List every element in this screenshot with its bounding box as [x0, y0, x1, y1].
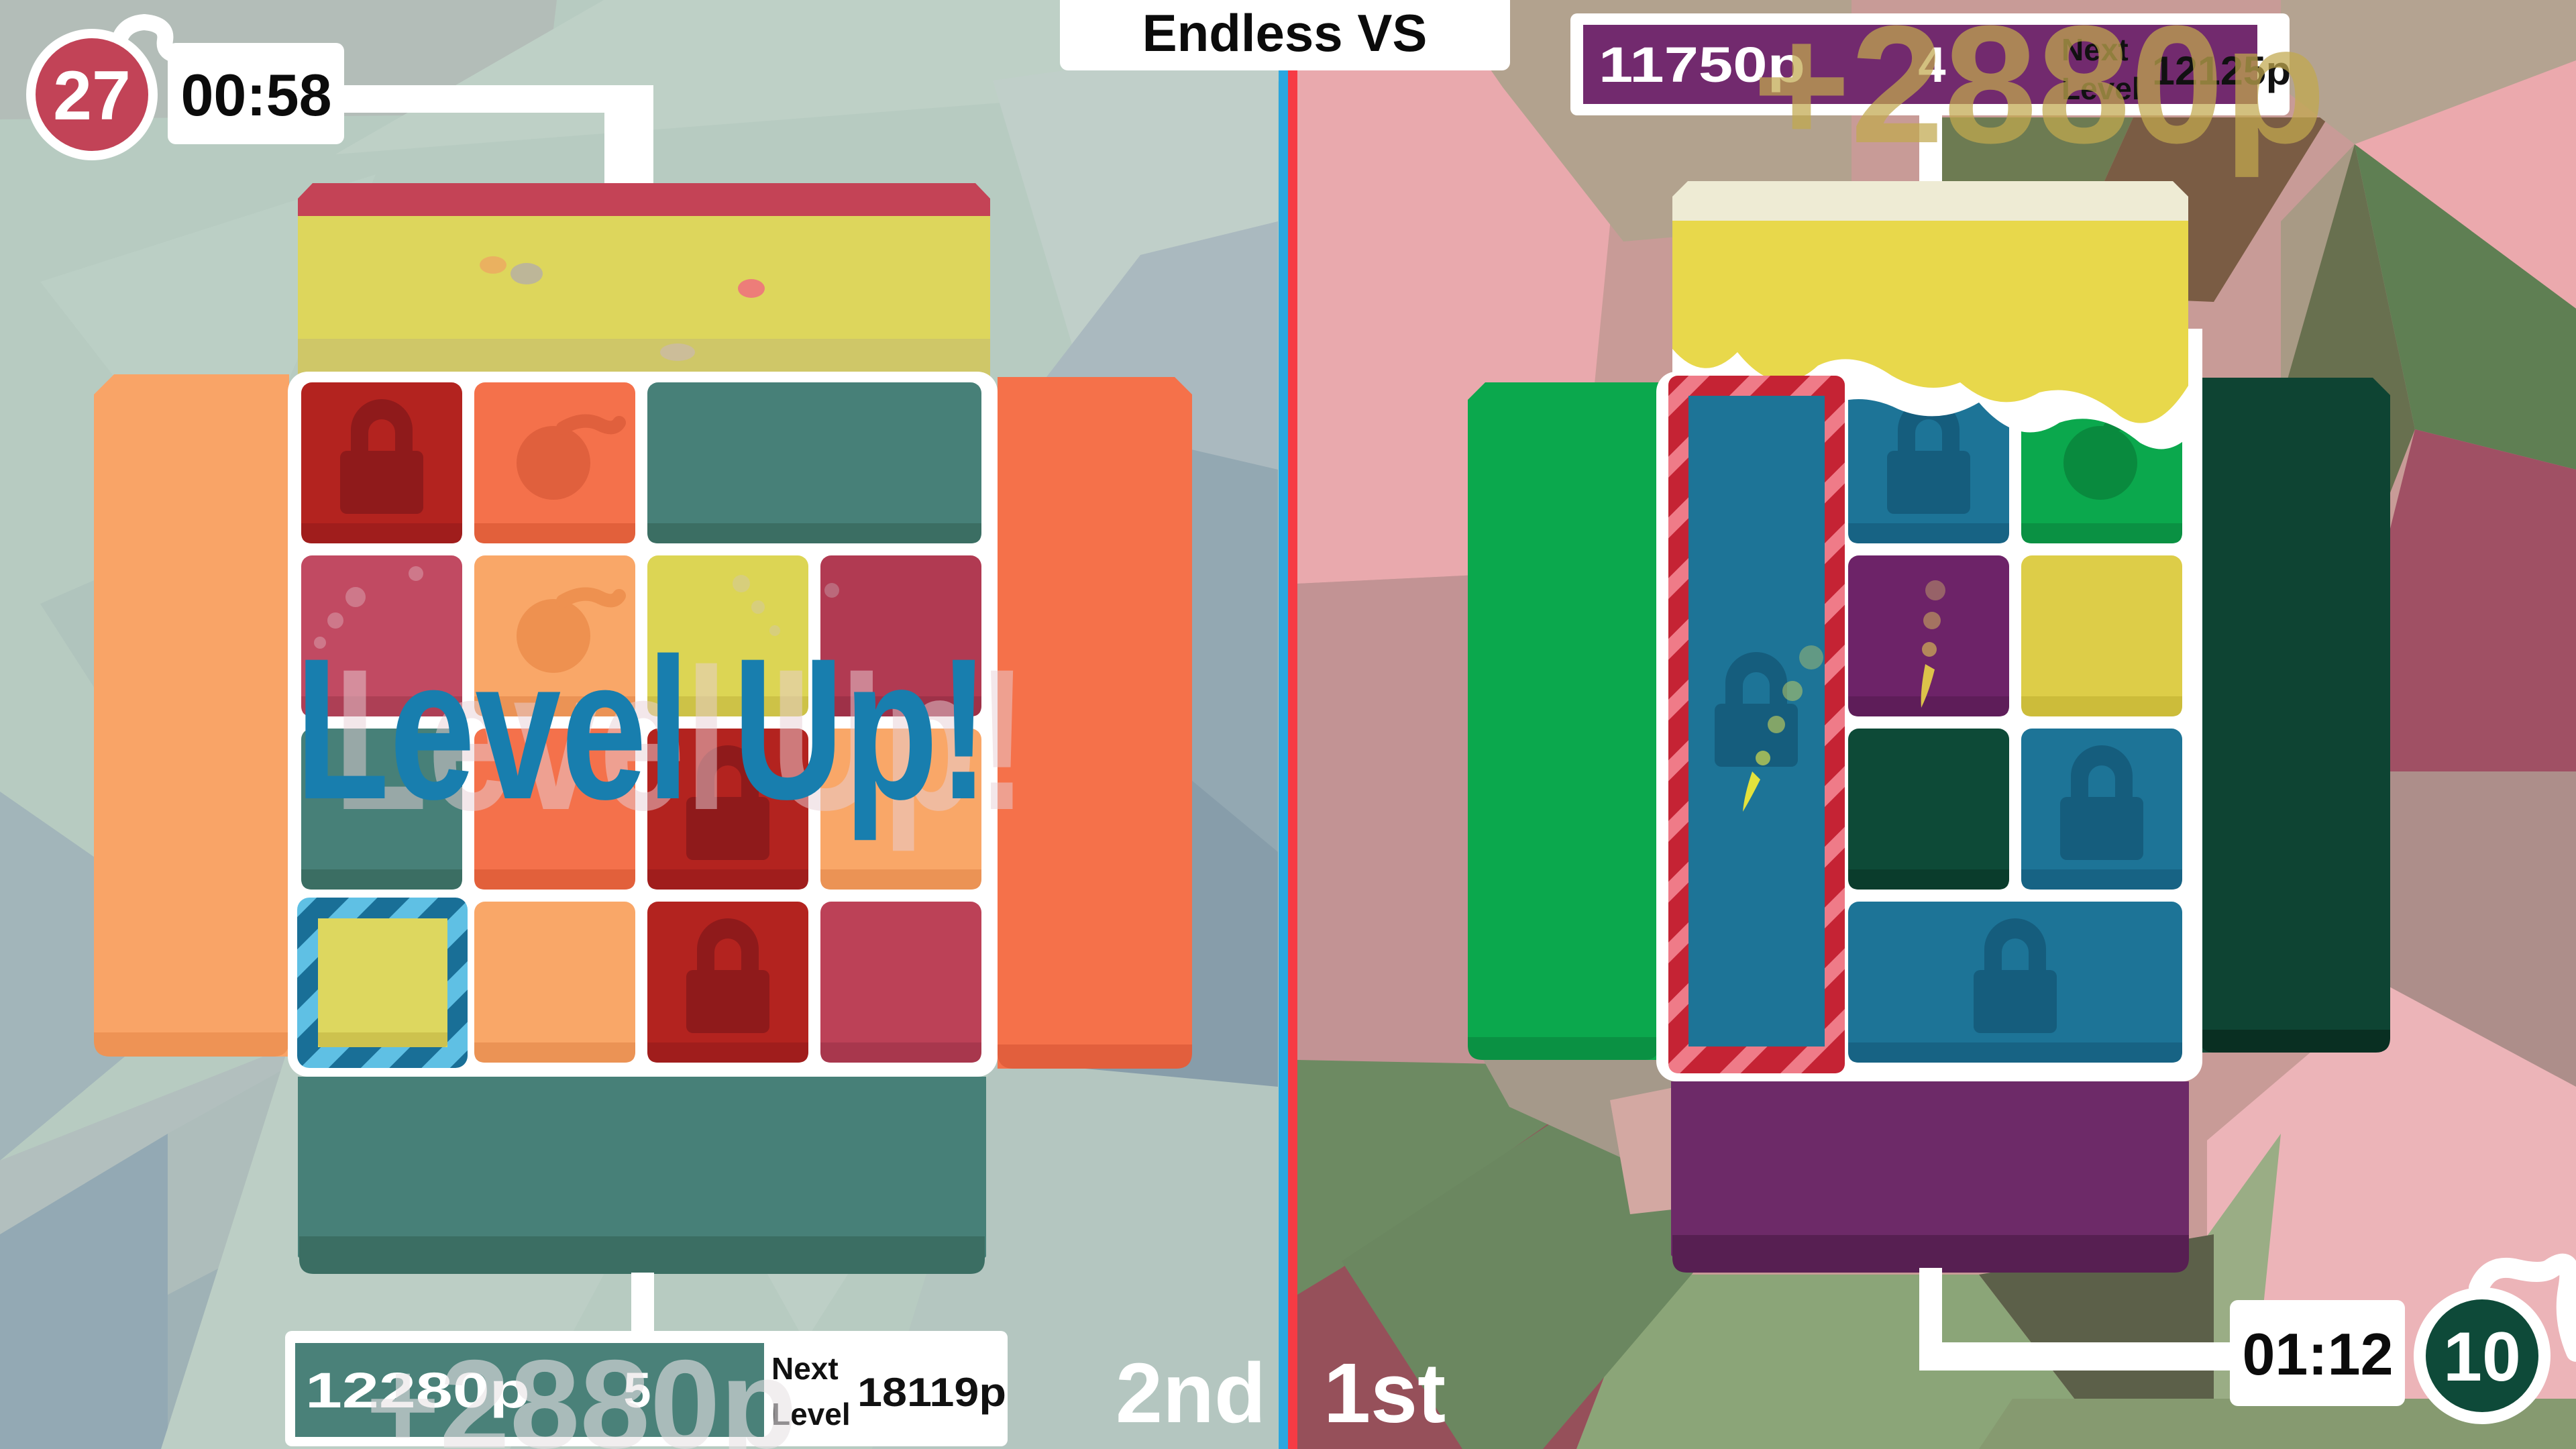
- svg-text:+2880p: +2880p: [1753, 0, 2326, 178]
- svg-text:10: 10: [2443, 1318, 2521, 1396]
- svg-text:Endless VS: Endless VS: [1142, 3, 1428, 62]
- svg-text:1st: 1st: [1324, 1346, 1446, 1440]
- svg-text:+2880p: +2880p: [366, 1334, 798, 1449]
- svg-text:18119p: 18119p: [857, 1370, 1006, 1415]
- svg-text:2nd: 2nd: [1116, 1346, 1266, 1440]
- svg-text:Level Up!: Level Up!: [295, 616, 989, 843]
- svg-text:00:58: 00:58: [180, 62, 331, 128]
- svg-text:01:12: 01:12: [2242, 1321, 2393, 1387]
- svg-text:27: 27: [53, 57, 131, 135]
